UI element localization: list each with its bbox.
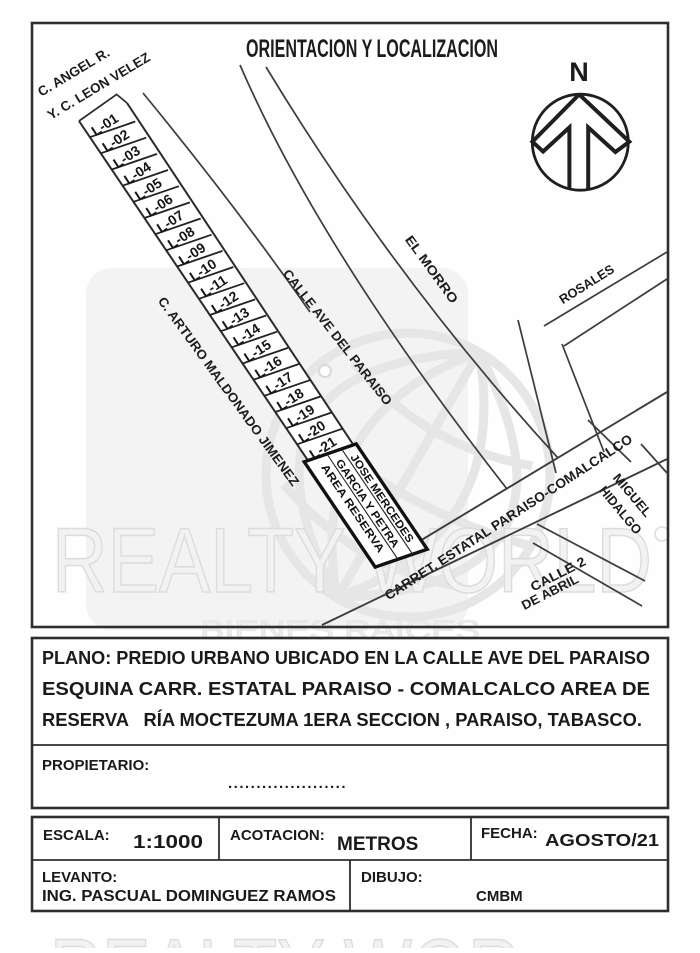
svg-text:LEVANTO:: LEVANTO: bbox=[42, 869, 117, 886]
svg-text:.....................: ..................... bbox=[228, 775, 347, 792]
svg-text:N: N bbox=[569, 57, 589, 87]
svg-text:ESQUINA CARR. ESTATAL PARAISO: ESQUINA CARR. ESTATAL PARAISO - COMALCAL… bbox=[42, 679, 650, 699]
svg-text:CMBM: CMBM bbox=[476, 888, 523, 905]
svg-text:PLANO: PREDIO URBANO UBICADO E: PLANO: PREDIO URBANO UBICADO EN LA CALLE… bbox=[42, 648, 650, 668]
svg-text:1:1000: 1:1000 bbox=[133, 831, 203, 852]
svg-text:AGOSTO/21: AGOSTO/21 bbox=[545, 830, 659, 850]
svg-text:ING. PASCUAL DOMINGUEZ RAMOS: ING. PASCUAL DOMINGUEZ RAMOS bbox=[42, 888, 336, 905]
svg-text:REALTY WOR: REALTY WOR bbox=[50, 921, 520, 948]
svg-text:PROPIETARIO:: PROPIETARIO: bbox=[42, 757, 149, 774]
svg-text:BIENES RAICES: BIENES RAICES bbox=[200, 615, 480, 645]
svg-text:DIBUJO:: DIBUJO: bbox=[361, 869, 423, 886]
svg-text:METROS: METROS bbox=[337, 834, 418, 855]
svg-text:ESCALA:: ESCALA: bbox=[43, 827, 110, 844]
svg-text:ORIENTACION Y LOCALIZACION: ORIENTACION Y LOCALIZACION bbox=[246, 35, 498, 63]
svg-text:RESERVA RÍA MOCTEZUMA 1ERA S: RESERVA RÍA MOCTEZUMA 1ERA SECCION , PAR… bbox=[42, 709, 642, 730]
svg-text:FECHA:: FECHA: bbox=[481, 825, 538, 842]
svg-text:ACOTACION:: ACOTACION: bbox=[230, 827, 325, 844]
